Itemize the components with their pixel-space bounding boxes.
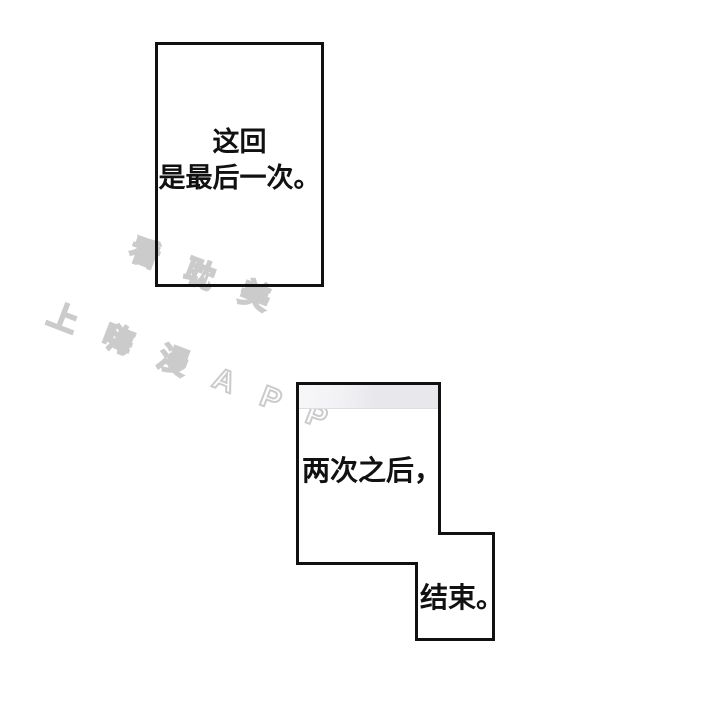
panel-2-text: 两次之后， [302,456,442,486]
panel-1-text-line-1: 这回 [104,124,375,160]
panel-3-text: 结束。 [420,583,504,613]
panel-borders-layer [0,0,720,703]
panel-1-text-line-2: 是最后一次。 [104,160,375,196]
panel-1-text: 这回 是最后一次。 [104,124,375,196]
comic-page: 看耽美 上嗨漫APP 这回 是最后一次。 两次之后， 结束。 [0,0,720,703]
